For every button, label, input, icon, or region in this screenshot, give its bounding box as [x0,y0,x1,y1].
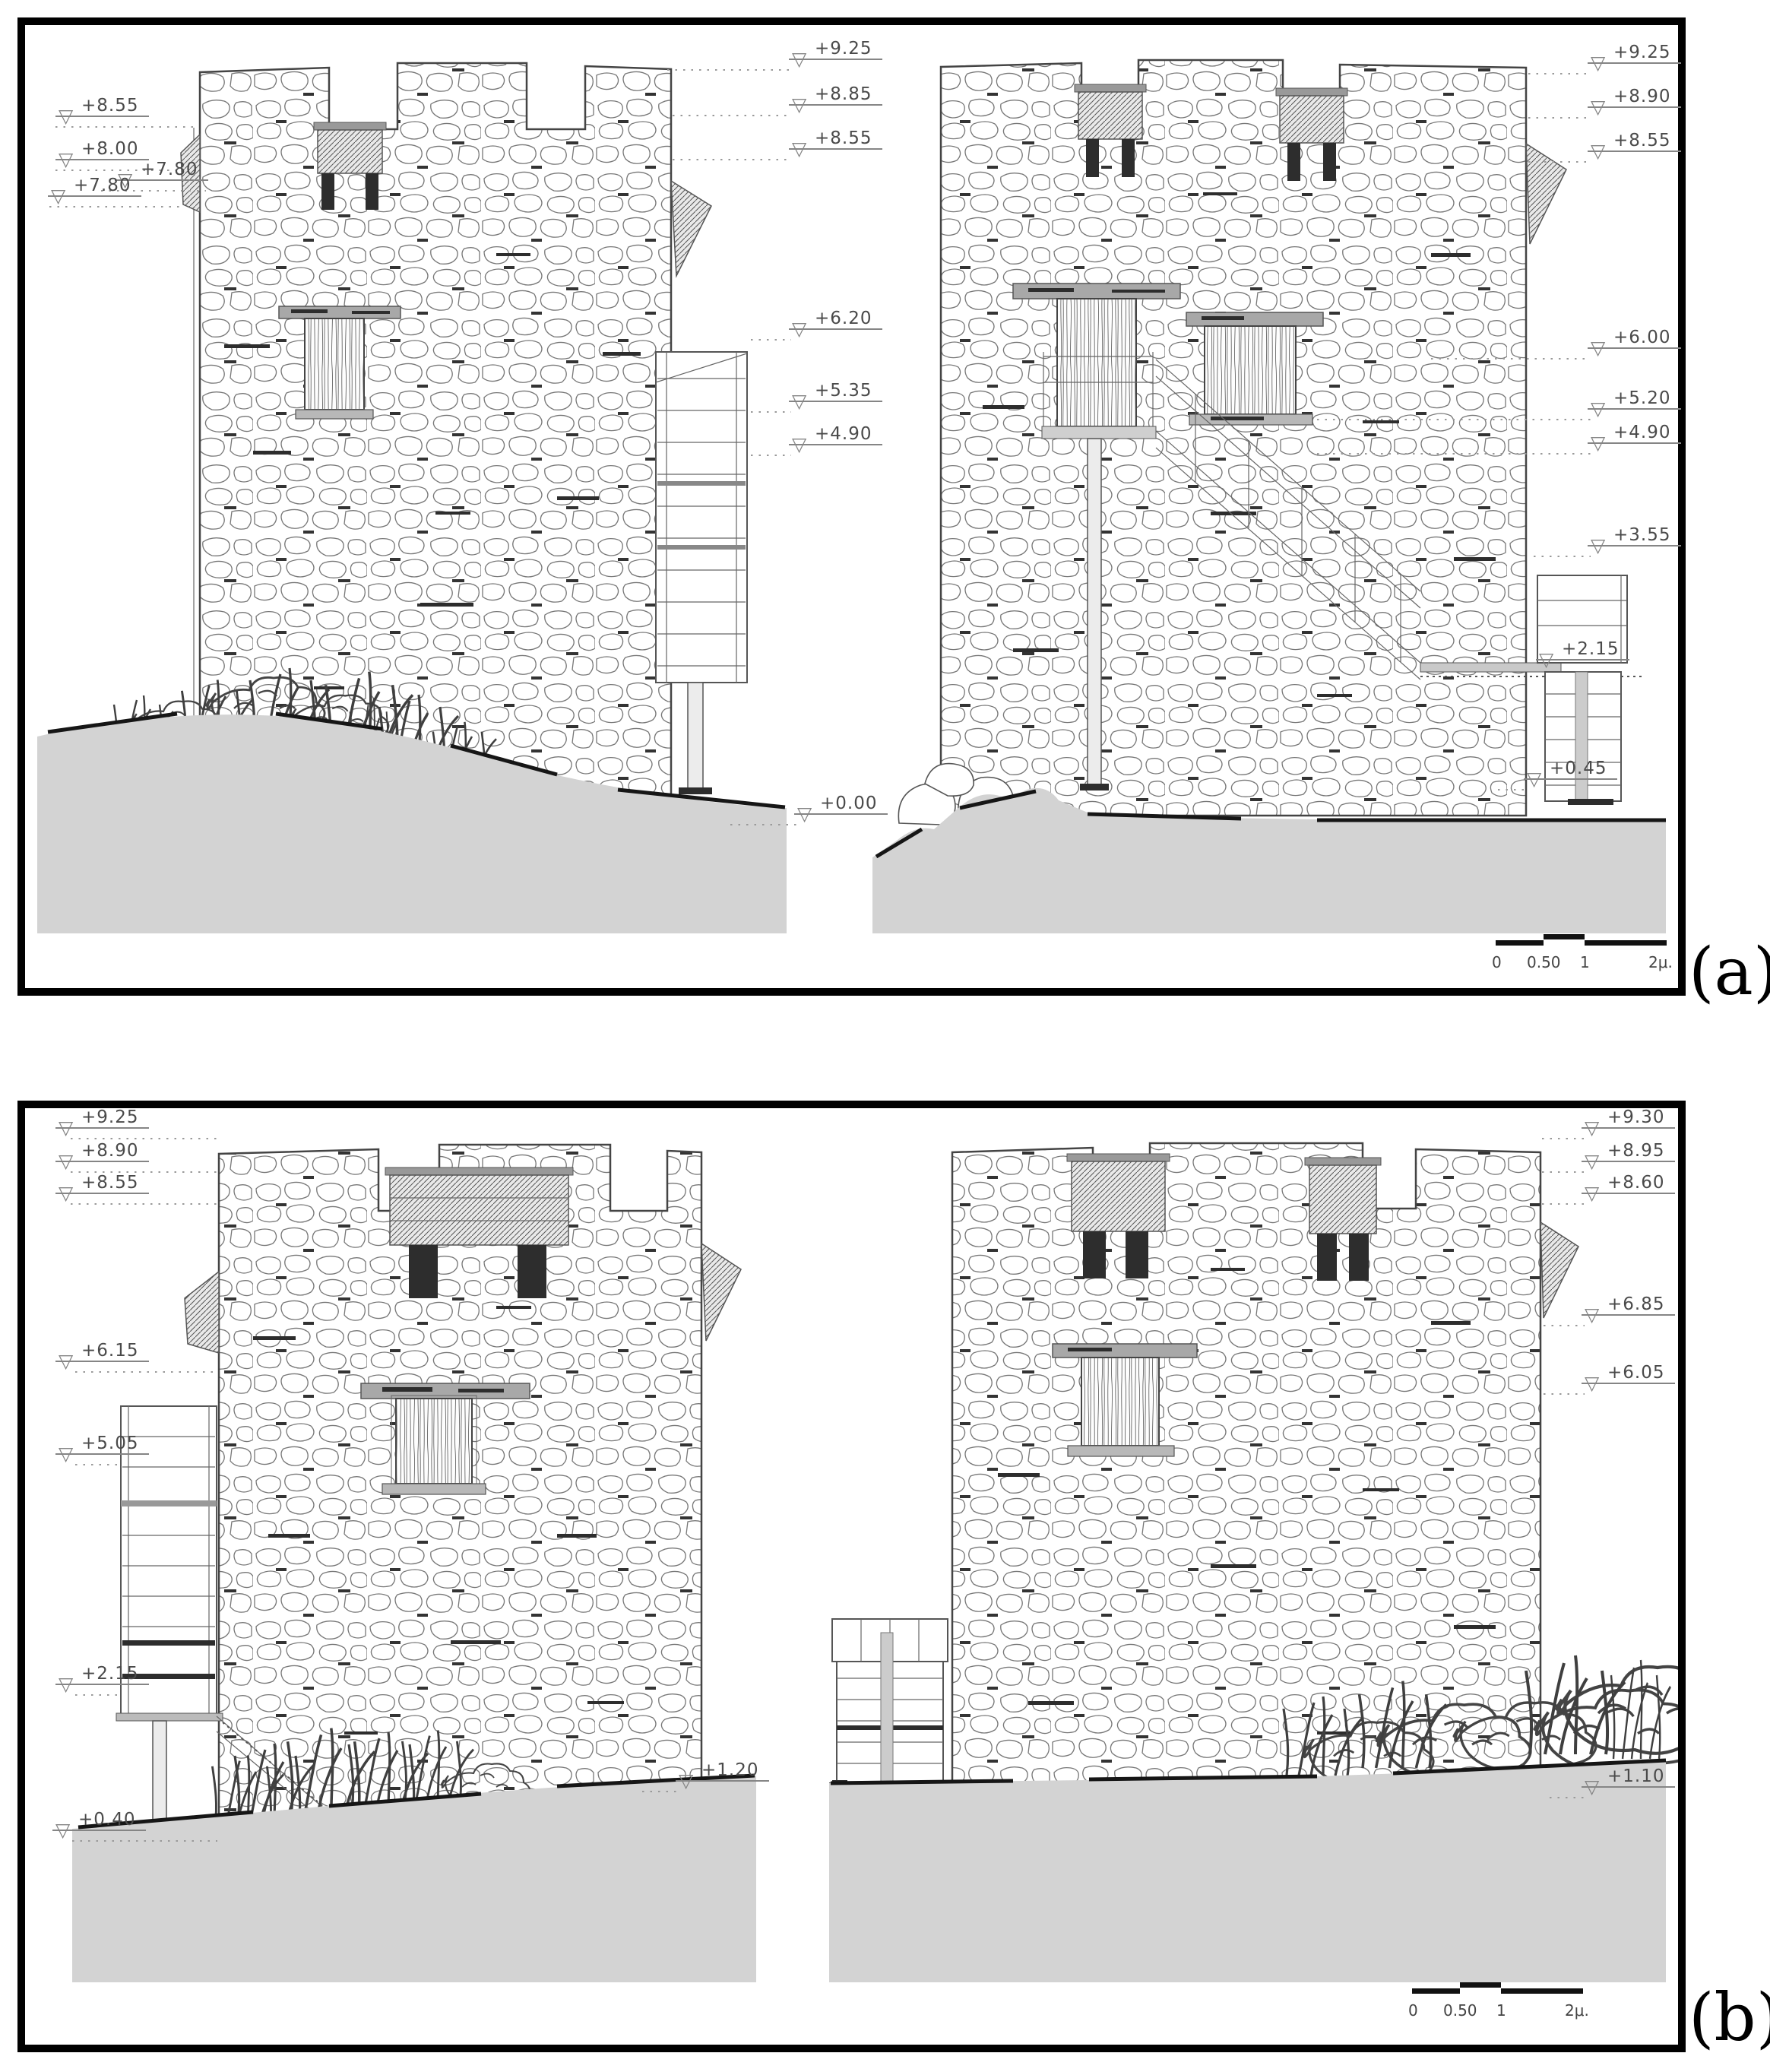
level-triangle-icon: ▽ [679,1771,693,1790]
scale-tick-0: 0 [1492,953,1502,971]
level-triangle-icon: ▽ [1585,1777,1599,1796]
level-marker: ▽+7.80 [48,176,141,197]
level-triangle-icon: ▽ [1591,338,1605,357]
level-triangle-icon: ▽ [59,150,73,169]
level-triangle-icon: ▽ [792,49,806,68]
level-marker: ▽+6.20 [789,309,882,330]
corner-wedge-b-right [1540,1222,1578,1318]
scale-tick-1: 1 [1580,953,1590,971]
level-triangle-icon: ▽ [1591,433,1605,452]
level-marker: ▽+0.40 [52,1811,146,1831]
level-triangle-icon: ▽ [792,319,806,338]
level-marker: ▽+4.90 [1588,423,1681,444]
level-marker: ▽+8.55 [1588,131,1681,152]
level-marker: ▽+6.05 [1582,1364,1675,1384]
level-triangle-icon: ▽ [1591,97,1605,116]
level-triangle-icon: ▽ [59,106,73,125]
level-marker: ▽+0.45 [1524,759,1617,780]
level-marker: ▽+8.55 [789,129,882,150]
corner-wedge-b-left [701,1244,741,1341]
level-triangle-icon: ▽ [1585,1118,1599,1137]
level-triangle-icon: ▽ [59,1152,73,1171]
level-triangle-icon: ▽ [1591,536,1605,555]
level-marker: ▽+9.25 [1588,43,1681,64]
level-marker: ▽+2.15 [1536,640,1629,661]
scale-tick-050: 0.50 [1443,2001,1477,2020]
level-triangle-icon: ▽ [797,804,812,823]
tower-b-right [952,1143,1578,1788]
level-triangle-icon: ▽ [59,1183,73,1202]
scale-bar-b: 0 0.50 1 2μ. [1408,1982,1589,2020]
level-triangle-icon: ▽ [1585,1305,1599,1324]
tower-a-left [181,63,711,800]
level-marker: ▽+1.10 [1582,1767,1675,1788]
level-triangle-icon: ▽ [1527,769,1541,788]
level-marker: ▽+3.55 [1588,526,1681,547]
level-marker: ▽+6.15 [55,1342,149,1362]
level-marker: ▽+8.00 [55,140,149,160]
level-marker: ▽+8.85 [789,85,882,106]
scale-bar-a: 0 0.50 1 2μ. [1492,934,1673,971]
level-marker: ▽+8.90 [1588,87,1681,108]
level-triangle-icon: ▽ [792,139,806,158]
level-marker: ▽+5.05 [55,1434,149,1455]
level-marker: ▽+2.15 [55,1665,149,1685]
level-triangle-icon: ▽ [1585,1152,1599,1171]
scale-tick-2: 2μ. [1565,2001,1589,2020]
level-triangle-icon: ▽ [1591,141,1605,160]
panel-a: 0 0.50 1 2μ. ▽+8.55 ▽+8.00 ▽+7.80 ▽+7.80… [17,17,1686,996]
level-marker: ▽+8.55 [55,1174,149,1194]
figure-page: 0 0.50 1 2μ. ▽+8.55 ▽+8.00 ▽+7.80 ▽+7.80… [0,0,1770,2072]
level-marker: ▽+6.00 [1588,328,1681,349]
level-triangle-icon: ▽ [51,186,65,205]
elevation-drawing-a: 0 0.50 1 2μ. [25,25,1678,988]
panel-b: 0 0.50 1 2μ. ▽+9.25 ▽+8.90 ▽+8.55 ▽+6.15… [17,1101,1686,2052]
stair-b-right [829,1619,954,1785]
level-triangle-icon: ▽ [59,1118,73,1137]
level-marker: ▽+9.25 [55,1108,149,1129]
level-triangle-icon: ▽ [1591,53,1605,72]
level-triangle-icon: ▽ [55,1820,70,1839]
level-triangle-icon: ▽ [792,391,806,410]
panel-b-caption: (b) [1689,1985,1770,2051]
level-marker: ▽+8.95 [1582,1142,1675,1162]
level-triangle-icon: ▽ [1585,1373,1599,1392]
level-marker: ▽+5.20 [1588,389,1681,410]
level-marker: ▽+5.35 [789,382,882,402]
level-marker: ▽+0.00 [794,794,888,815]
ground-a-left [37,714,787,933]
level-triangle-icon: ▽ [1539,650,1553,669]
level-marker: ▽+8.55 [55,97,149,117]
level-triangle-icon: ▽ [59,1674,73,1693]
level-triangle-icon: ▽ [59,1351,73,1370]
level-marker: ▽+9.30 [1582,1108,1675,1129]
ground-b-left [72,1776,756,1982]
corner-wedge-a-right [1526,144,1566,244]
level-marker: ▽+4.90 [789,425,882,445]
level-triangle-icon: ▽ [1591,399,1605,418]
level-triangle-icon: ▽ [792,435,806,454]
level-triangle-icon: ▽ [792,95,806,114]
scale-tick-0: 0 [1408,2001,1418,2020]
level-triangle-icon: ▽ [59,1444,73,1463]
tower-b-left [185,1145,741,1826]
elevation-drawing-b: 0 0.50 1 2μ. [25,1108,1678,2045]
tower-a-right [941,60,1566,816]
level-marker: ▽+6.85 [1582,1295,1675,1316]
panel-a-caption: (a) [1689,939,1770,1005]
ground-b-right [829,1760,1666,1982]
corner-wedge-a-left [671,181,711,276]
level-marker: ▽+8.90 [55,1142,149,1162]
level-triangle-icon: ▽ [1585,1183,1599,1202]
scale-tick-1: 1 [1496,2001,1506,2020]
level-marker: ▽+9.25 [789,40,882,60]
level-marker: ▽+1.20 [676,1761,769,1782]
scale-tick-050: 0.50 [1527,953,1561,971]
scale-tick-2: 2μ. [1648,953,1673,971]
level-marker: ▽+8.60 [1582,1174,1675,1194]
spout-b-left [185,1272,219,1353]
